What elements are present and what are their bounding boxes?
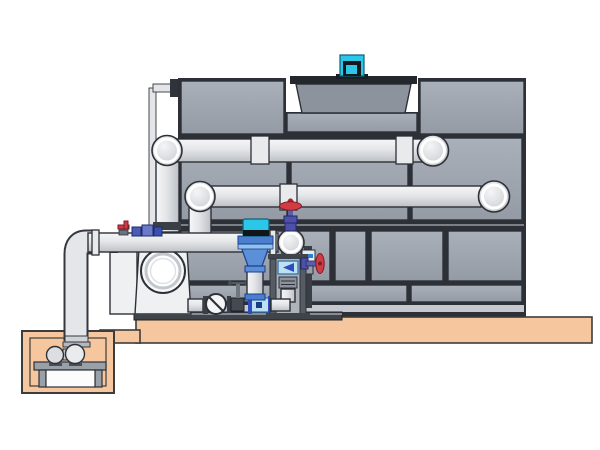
panel-joint (181, 224, 524, 226)
tower-panel (420, 81, 524, 134)
pump-flange (238, 236, 273, 244)
pipe-coupling (251, 136, 269, 164)
pump-motor (47, 347, 64, 364)
nameplate (279, 277, 297, 288)
tower-panel (181, 81, 284, 134)
blue-isolation-valves (132, 225, 162, 236)
slab-main (136, 317, 592, 343)
fan-cowl (290, 76, 417, 113)
check-valve (206, 294, 226, 314)
diagram-canvas (0, 0, 600, 450)
cooling-tower-system-illustration (0, 0, 600, 450)
handwheel (280, 202, 302, 210)
tower-panel (448, 231, 522, 281)
pump-motor-bracket (110, 247, 137, 314)
tower-panel (411, 285, 522, 302)
concrete-slab (100, 317, 592, 343)
upper-supply-pipe (152, 135, 449, 166)
pump-casing (66, 345, 85, 364)
tower-panel (335, 231, 366, 281)
tower-panel (371, 231, 443, 281)
small-red-valve (118, 221, 129, 235)
strainer-cartridge (278, 261, 298, 274)
middle-return-pipe (185, 181, 510, 212)
pipe-coupling (396, 136, 413, 164)
centrifugal-pump (110, 247, 191, 314)
fan-motor (336, 55, 368, 79)
pipe-flange (170, 79, 178, 97)
fan-deck-panel (287, 113, 417, 132)
stand-feet (266, 313, 310, 319)
